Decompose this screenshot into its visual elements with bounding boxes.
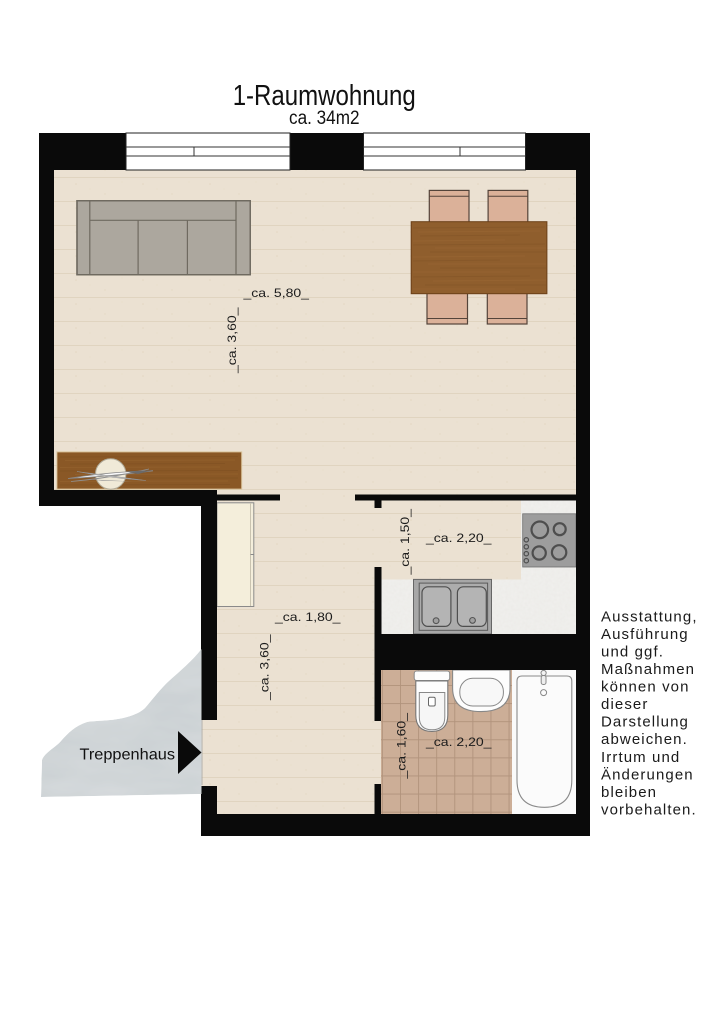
svg-text:Maßnahmen: Maßnahmen bbox=[601, 661, 695, 678]
svg-text:_ca. 2,20_: _ca. 2,20_ bbox=[425, 735, 492, 749]
svg-text:_ca. 5,80_: _ca. 5,80_ bbox=[242, 286, 309, 300]
svg-text:_ca. 1,60_: _ca. 1,60_ bbox=[395, 712, 409, 779]
svg-text:_ca. 3,60_: _ca. 3,60_ bbox=[225, 307, 239, 374]
svg-text:Treppenhaus: Treppenhaus bbox=[80, 747, 176, 764]
svg-text:_ca. 2,20_: _ca. 2,20_ bbox=[425, 531, 492, 545]
svg-text:und ggf.: und ggf. bbox=[601, 644, 664, 661]
svg-text:Änderungen: Änderungen bbox=[601, 766, 694, 783]
svg-text:können von: können von bbox=[601, 679, 690, 696]
svg-text:Ausführung: Ausführung bbox=[601, 626, 689, 643]
svg-text:_ca. 3,60_: _ca. 3,60_ bbox=[258, 634, 272, 701]
svg-text:_ca. 1,80_: _ca. 1,80_ bbox=[274, 610, 341, 624]
svg-text:vorbehalten.: vorbehalten. bbox=[601, 801, 697, 818]
svg-text:abweichen.: abweichen. bbox=[601, 731, 688, 748]
svg-text:bleiben: bleiben bbox=[601, 784, 657, 801]
svg-text:Irrtum und: Irrtum und bbox=[601, 749, 680, 766]
svg-text:Darstellung: Darstellung bbox=[601, 714, 689, 731]
svg-text:ca. 34m2: ca. 34m2 bbox=[289, 108, 360, 129]
svg-text:dieser: dieser bbox=[601, 696, 648, 713]
svg-text:Ausstattung,: Ausstattung, bbox=[601, 608, 698, 625]
svg-text:_ca. 1,50_: _ca. 1,50_ bbox=[398, 508, 412, 575]
